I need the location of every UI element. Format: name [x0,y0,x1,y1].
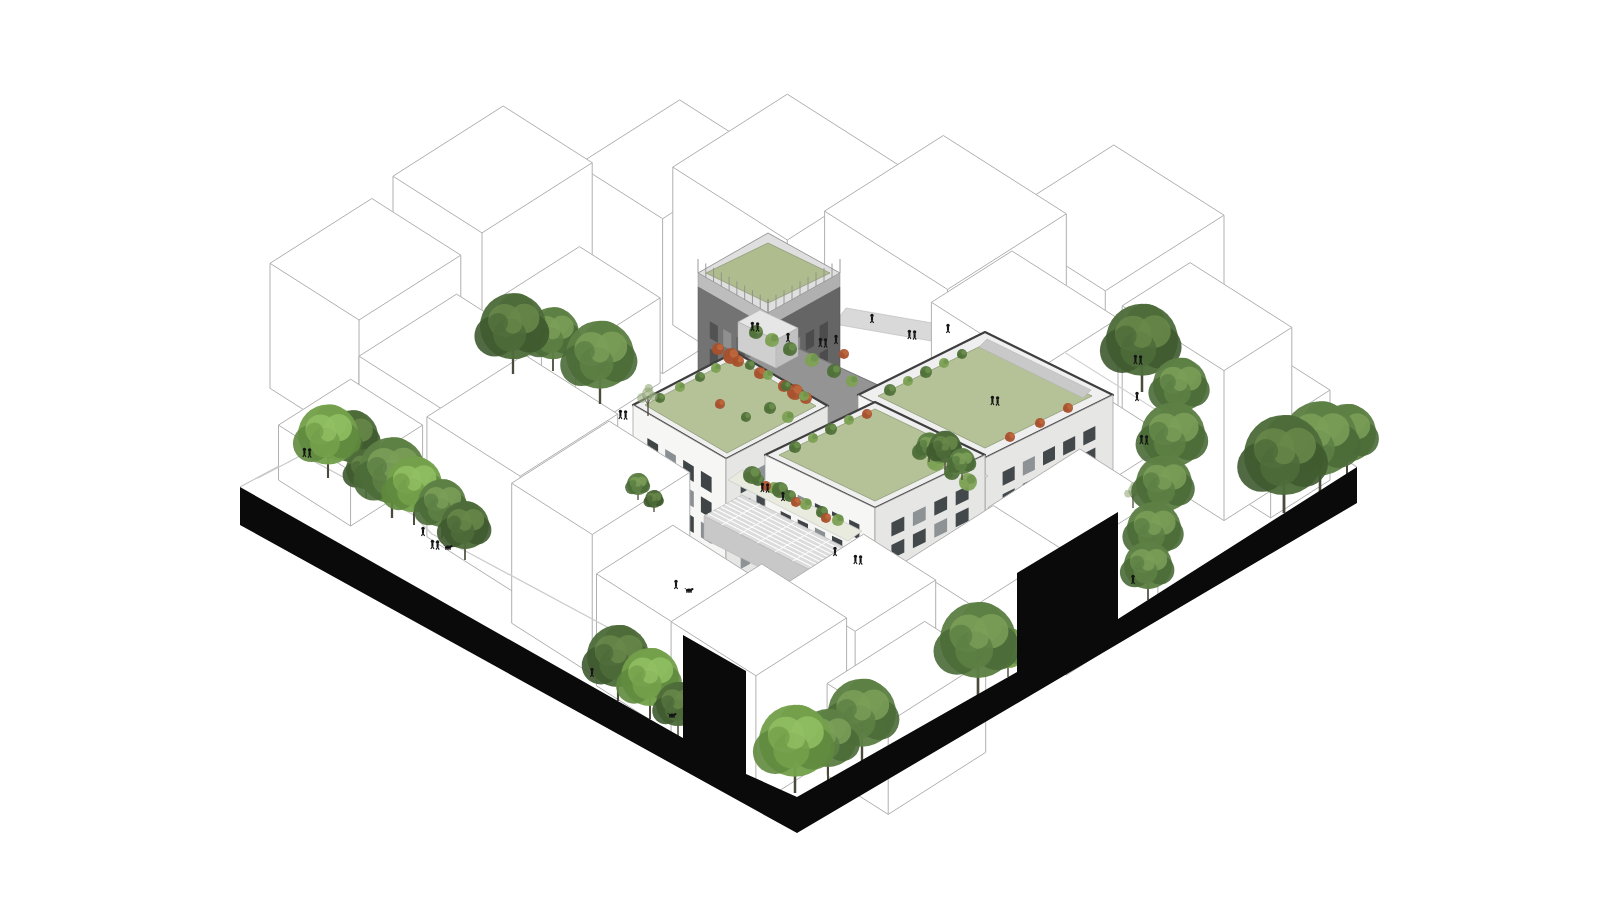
planter-shrub [675,382,685,392]
planter-shrub [715,399,725,409]
planter-shrub [825,423,837,435]
planter-shrub [821,513,831,523]
planter-shrub [772,482,788,498]
planter-shrub [839,349,849,359]
planter-shrub [846,375,858,387]
planter-shrub [743,466,761,484]
planter-shrub [1005,432,1015,442]
planter-shrub [903,376,913,386]
planter-shrub [808,433,818,443]
planter-shrub [745,360,755,370]
planter-shrub [765,333,779,347]
planter-shrub [805,353,819,367]
planter-shrub [781,381,791,391]
planter-shrub [763,370,773,380]
axonometric-site-diagram [0,0,1612,901]
planter-shrub [791,497,801,507]
planter-shrub [741,412,751,422]
planter-shrub [827,364,841,378]
planter-shrub [749,325,763,339]
pedestrian-figure [619,410,628,420]
planter-shrub [844,415,854,425]
planter-shrub [832,514,844,526]
planter-shrub [884,384,896,396]
planter-shrub [799,391,809,401]
planter-shrub [1063,403,1073,413]
site-axonometric-canvas [0,0,1612,901]
planter-shrub [712,343,724,355]
pedestrian-figure [421,527,424,536]
planter-shrub [920,366,932,378]
planter-shrub [783,342,797,356]
planter-shrub [695,372,705,382]
planter-shrub [723,348,739,364]
planter-shrub [789,441,801,453]
planter-shrub [1035,418,1045,428]
planter-shrub [957,349,967,359]
planter-shrub [711,363,721,373]
planter-shrub [782,411,794,423]
planter-shrub [862,409,872,419]
planter-shrub [939,358,949,368]
planter-shrub [764,402,776,414]
planter-shrub [800,498,812,510]
